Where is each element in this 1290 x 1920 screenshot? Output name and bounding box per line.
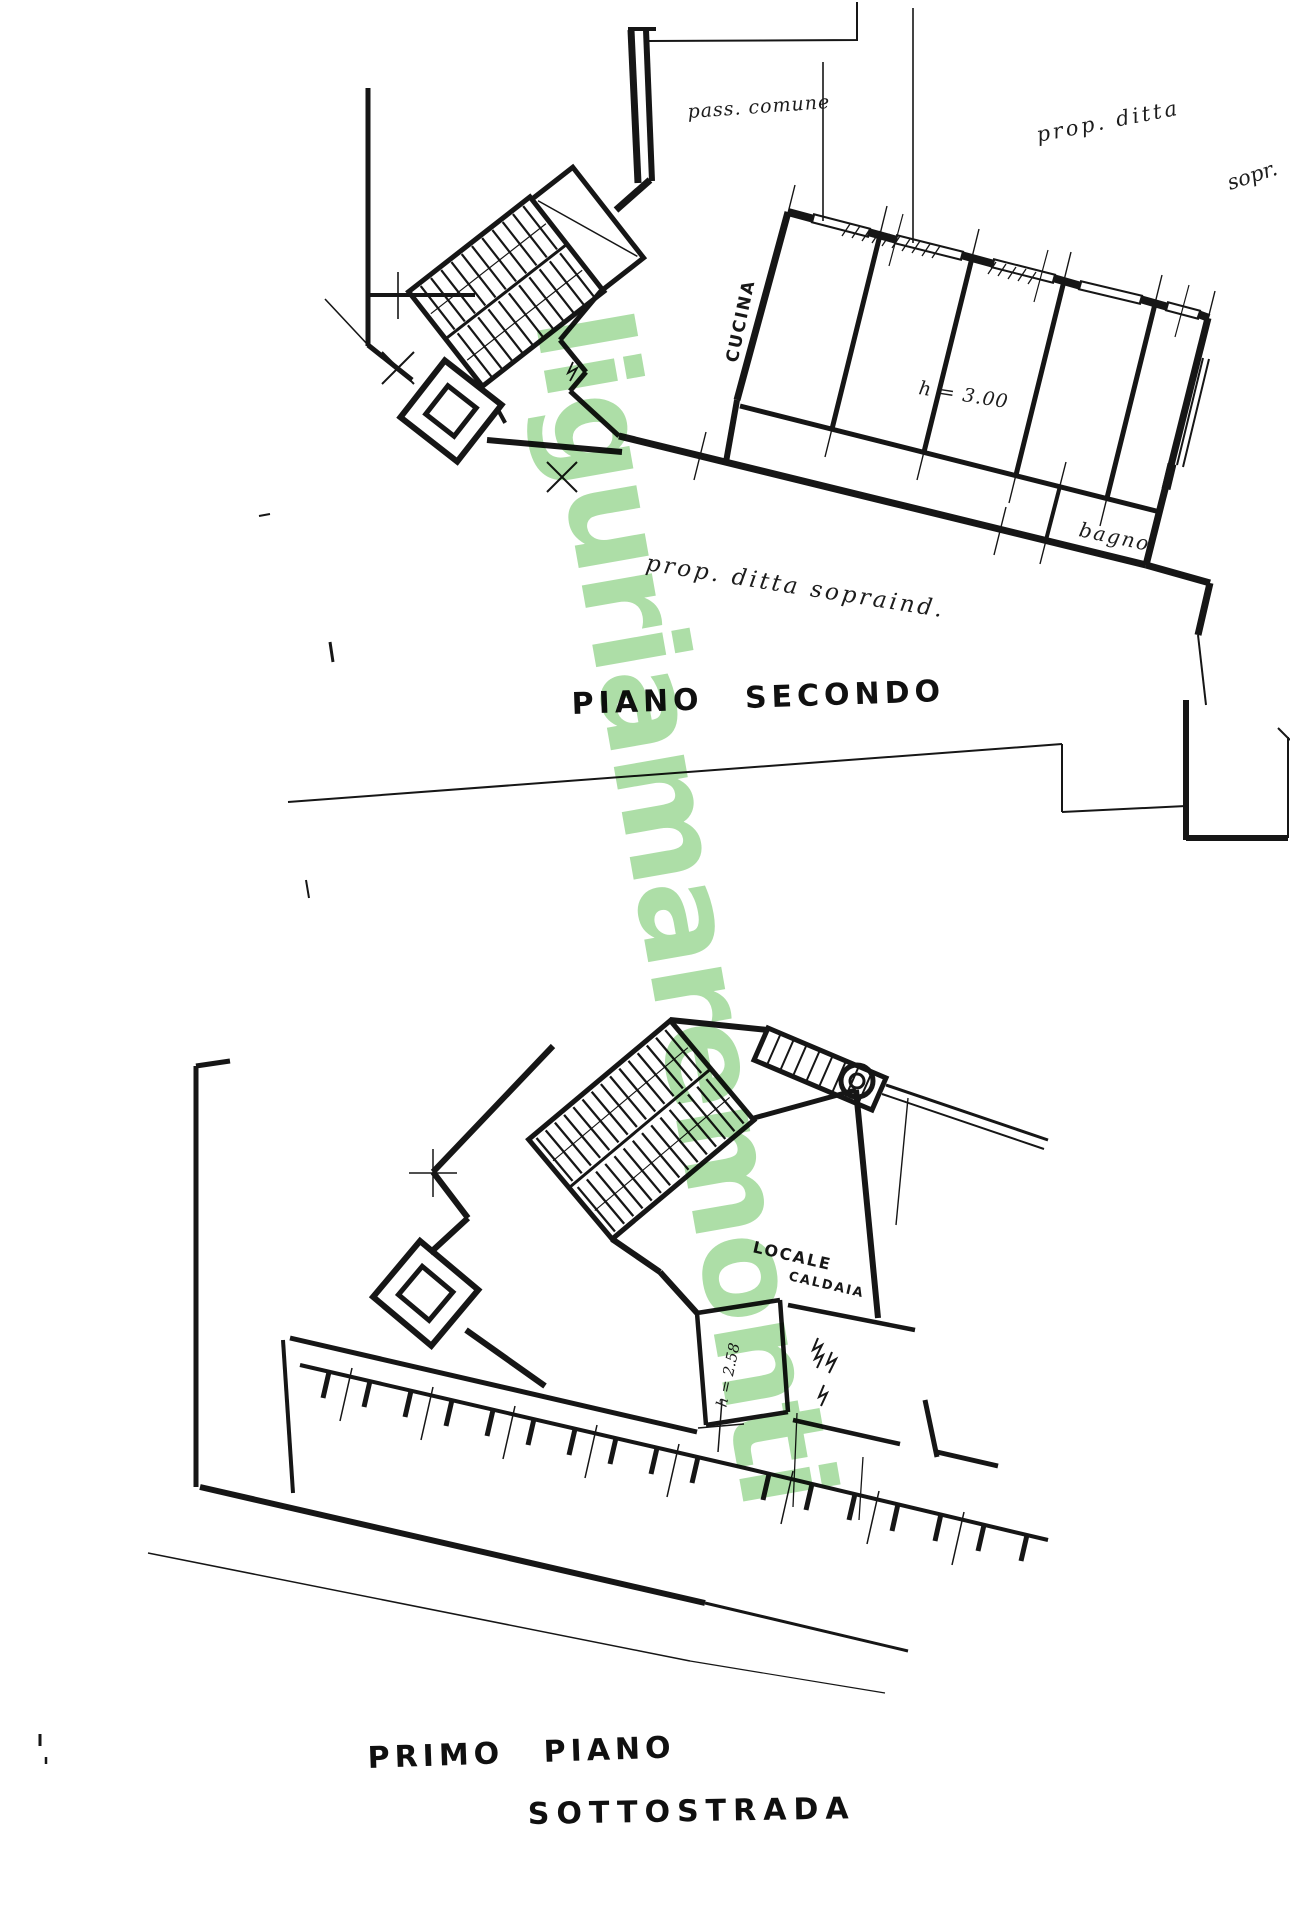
scanned-floorplan-page: pass. comune prop. ditta sopr. CUCINA h …: [0, 0, 1290, 1920]
label-cucina: CUCINA: [723, 278, 760, 365]
label-prop-ditta-top-2: sopr.: [1224, 156, 1280, 195]
lower-shaft-square: [373, 1241, 478, 1346]
upper-windows: [811, 214, 1209, 467]
margin-marks: [40, 1734, 46, 1764]
label-h300: h = 3.00: [917, 377, 1010, 413]
upper-neighbor-lines: [288, 700, 1290, 840]
label-pass-comune: pass. comune: [687, 91, 831, 123]
lower-plan-title-line1: PRIMO PIANO: [367, 1730, 676, 1776]
lower-plan-title-line2: SOTTOSTRADA: [528, 1791, 856, 1832]
label-prop-ditta-top: prop. ditta: [1034, 96, 1181, 147]
upper-partitions: [832, 235, 1155, 540]
floorplan-drawing: pass. comune prop. ditta sopr. CUCINA h …: [0, 0, 1290, 1920]
